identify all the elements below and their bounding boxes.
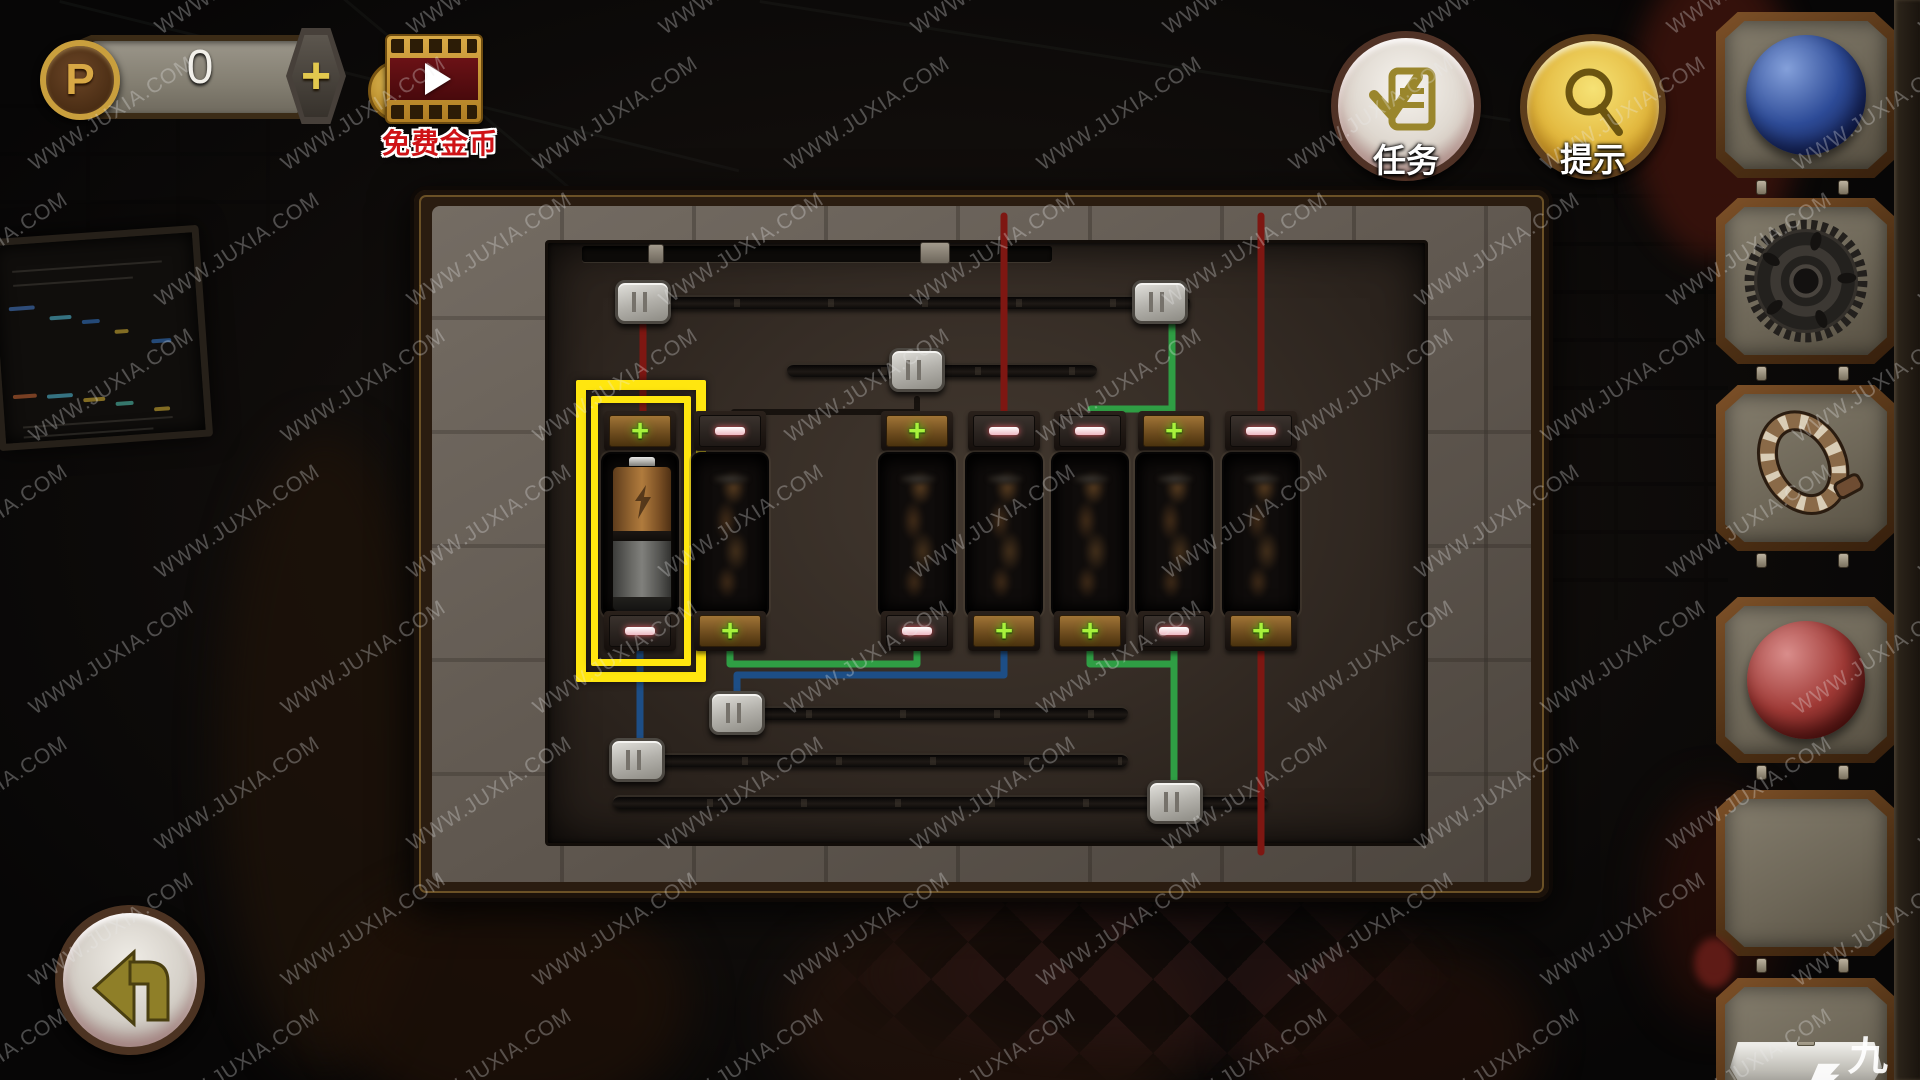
battery-slot-1[interactable] bbox=[601, 452, 679, 618]
negative-terminal-sign bbox=[715, 427, 745, 435]
empty-slot-reflection bbox=[1067, 472, 1115, 600]
terminal-top-slot-4 bbox=[973, 415, 1035, 447]
positive-terminal-sign: + bbox=[1081, 618, 1099, 644]
site-logo: 九游 bbox=[1802, 1024, 1920, 1080]
slider-knob[interactable] bbox=[1132, 280, 1188, 324]
positive-terminal-sign: + bbox=[721, 618, 739, 644]
empty-slot-reflection bbox=[894, 472, 942, 600]
coin-value: 0 bbox=[150, 44, 250, 92]
slider-knob[interactable] bbox=[615, 280, 671, 324]
battery-slot-6[interactable] bbox=[1135, 452, 1213, 618]
hint-label: 提示 bbox=[1527, 133, 1659, 181]
free-coins-label: 免费金币 bbox=[340, 122, 540, 162]
negative-terminal-sign bbox=[989, 427, 1019, 435]
free-coins-button[interactable]: 免费金币 bbox=[358, 22, 522, 168]
terminal-base-bottom-4: + bbox=[968, 611, 1040, 651]
terminal-bottom-slot-5: + bbox=[1059, 615, 1121, 647]
slot-connector-pin bbox=[1756, 765, 1767, 780]
battery-slot-7[interactable] bbox=[1222, 452, 1300, 618]
terminal-base-top-1: + bbox=[604, 411, 676, 451]
inventory-slot-frame-3 bbox=[1716, 385, 1896, 551]
battery-end bbox=[613, 597, 671, 612]
video-film-icon bbox=[385, 34, 483, 124]
slot-connector-pin bbox=[1756, 553, 1767, 568]
undo-arrow-icon bbox=[78, 928, 182, 1032]
slider-track-3 bbox=[712, 706, 1128, 720]
strap-handle-item bbox=[1744, 406, 1868, 530]
terminal-base-top-5 bbox=[1054, 411, 1126, 451]
inventory-slot-4[interactable] bbox=[1725, 606, 1887, 754]
negative-terminal-sign bbox=[1075, 427, 1105, 435]
green-wire bbox=[730, 651, 917, 664]
terminal-bottom-slot-1 bbox=[609, 615, 671, 647]
empty-slot-reflection bbox=[981, 472, 1029, 600]
slot-connector-pin bbox=[1838, 958, 1849, 973]
back-button[interactable] bbox=[55, 905, 205, 1055]
terminal-base-bottom-6 bbox=[1138, 611, 1210, 651]
task-label: 任务 bbox=[1338, 134, 1474, 182]
terminal-top-slot-2 bbox=[699, 415, 761, 447]
terminal-base-top-3: + bbox=[881, 411, 953, 451]
inventory-slot-5[interactable] bbox=[1725, 799, 1887, 947]
negative-terminal-sign bbox=[1159, 627, 1189, 635]
terminal-bottom-slot-3 bbox=[886, 615, 948, 647]
slot-connector-pin bbox=[1838, 366, 1849, 381]
slot-connector-pin bbox=[1756, 180, 1767, 195]
empty-slot-reflection bbox=[707, 472, 755, 600]
inventory-slot-3[interactable] bbox=[1725, 394, 1887, 542]
slider-knob[interactable] bbox=[609, 738, 665, 782]
slot-connector-pin bbox=[1838, 180, 1849, 195]
terminal-base-bottom-7: + bbox=[1225, 611, 1297, 651]
terminal-base-bottom-3 bbox=[881, 611, 953, 651]
inventory-slot-1[interactable] bbox=[1725, 21, 1887, 169]
inventory-slot-2[interactable] bbox=[1725, 207, 1887, 355]
hint-button[interactable]: 提示 bbox=[1520, 34, 1666, 180]
empty-slot-reflection bbox=[1151, 472, 1199, 600]
lightning-icon bbox=[633, 485, 653, 519]
terminal-bottom-slot-2: + bbox=[699, 615, 761, 647]
coin-icon: P bbox=[40, 40, 120, 120]
terminal-base-top-6: + bbox=[1138, 411, 1210, 451]
inventory-slot-frame-5 bbox=[1716, 790, 1896, 956]
play-icon bbox=[425, 63, 451, 95]
slider-knob[interactable] bbox=[889, 348, 945, 392]
battery-slot-5[interactable] bbox=[1051, 452, 1129, 618]
terminal-top-slot-7 bbox=[1230, 415, 1292, 447]
magnifier-icon bbox=[1551, 60, 1635, 144]
terminal-bottom-slot-7: + bbox=[1230, 615, 1292, 647]
slider-knob[interactable] bbox=[709, 691, 765, 735]
negative-terminal-sign bbox=[625, 627, 655, 635]
terminal-base-bottom-1 bbox=[604, 611, 676, 651]
positive-terminal-sign: + bbox=[631, 418, 649, 444]
terminal-top-slot-3: + bbox=[886, 415, 948, 447]
inventory-rail bbox=[1894, 0, 1920, 1080]
battery-bottom-half bbox=[613, 541, 671, 599]
green-wire bbox=[1090, 651, 1174, 664]
game-screen: +++++++ 0 + P 免费金币 任务 提示 bbox=[0, 0, 1920, 1080]
terminal-top-slot-1: + bbox=[609, 415, 671, 447]
terminal-base-top-4 bbox=[968, 411, 1040, 451]
terminal-bottom-slot-4: + bbox=[973, 615, 1035, 647]
slot-connector-pin bbox=[1756, 958, 1767, 973]
positive-terminal-sign: + bbox=[908, 418, 926, 444]
task-button[interactable]: 任务 bbox=[1331, 31, 1481, 181]
terminal-base-bottom-2: + bbox=[694, 611, 766, 651]
slider-track-4 bbox=[648, 753, 1128, 767]
empty-slot-reflection bbox=[1238, 472, 1286, 600]
site-logo-icon bbox=[1804, 1060, 1842, 1080]
inventory-slot-frame-4 bbox=[1716, 597, 1896, 763]
red-bauble bbox=[1694, 938, 1734, 988]
negative-terminal-sign bbox=[902, 627, 932, 635]
slot-connector-pin bbox=[1756, 366, 1767, 381]
terminal-base-top-2 bbox=[694, 411, 766, 451]
blue-wire bbox=[737, 651, 1004, 694]
terminal-bottom-slot-6 bbox=[1143, 615, 1205, 647]
positive-terminal-sign: + bbox=[1165, 418, 1183, 444]
terminal-top-slot-6: + bbox=[1143, 415, 1205, 447]
red-ball-item bbox=[1747, 621, 1865, 739]
slider-knob[interactable] bbox=[1147, 780, 1203, 824]
plus-icon: + bbox=[301, 56, 331, 96]
negative-terminal-sign bbox=[1246, 427, 1276, 435]
slot-connector-pin bbox=[1838, 765, 1849, 780]
scroll-icon bbox=[1366, 61, 1446, 141]
battery-slot-3[interactable] bbox=[878, 452, 956, 618]
positive-terminal-sign: + bbox=[995, 618, 1013, 644]
blue-ball-item bbox=[1746, 35, 1866, 155]
inventory-slot-frame-2 bbox=[1716, 198, 1896, 364]
slot-connector-pin bbox=[1838, 553, 1849, 568]
site-logo-text: 九游 bbox=[1843, 1024, 1920, 1080]
battery[interactable] bbox=[612, 466, 672, 612]
terminal-base-bottom-5: + bbox=[1054, 611, 1126, 651]
gear-item bbox=[1743, 218, 1869, 344]
battery-slot-4[interactable] bbox=[965, 452, 1043, 618]
inventory-slot-frame-1 bbox=[1716, 12, 1896, 178]
positive-terminal-sign: + bbox=[1252, 618, 1270, 644]
terminal-top-slot-5 bbox=[1059, 415, 1121, 447]
battery-slot-2[interactable] bbox=[691, 452, 769, 618]
terminal-base-top-7 bbox=[1225, 411, 1297, 451]
slider-track-1 bbox=[640, 295, 1190, 309]
